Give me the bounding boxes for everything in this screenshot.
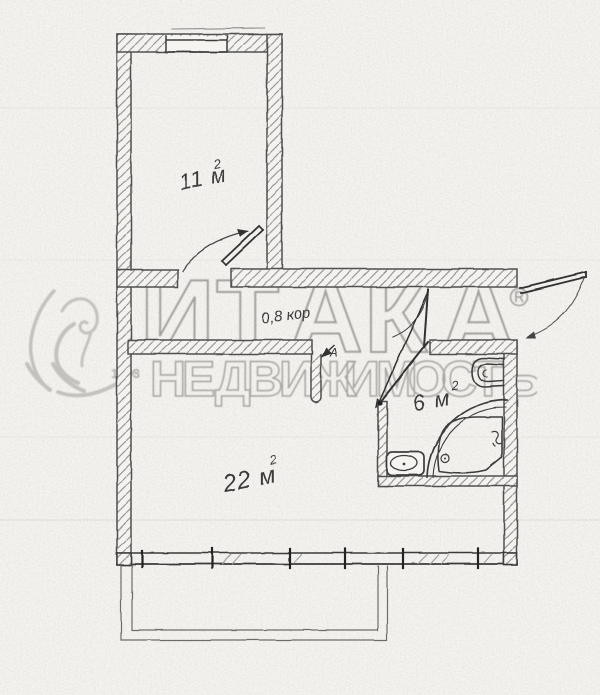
svg-text:A: A <box>329 345 338 359</box>
svg-text:НЕДВИЖИМОСТЬ: НЕДВИЖИМОСТЬ <box>150 351 541 407</box>
